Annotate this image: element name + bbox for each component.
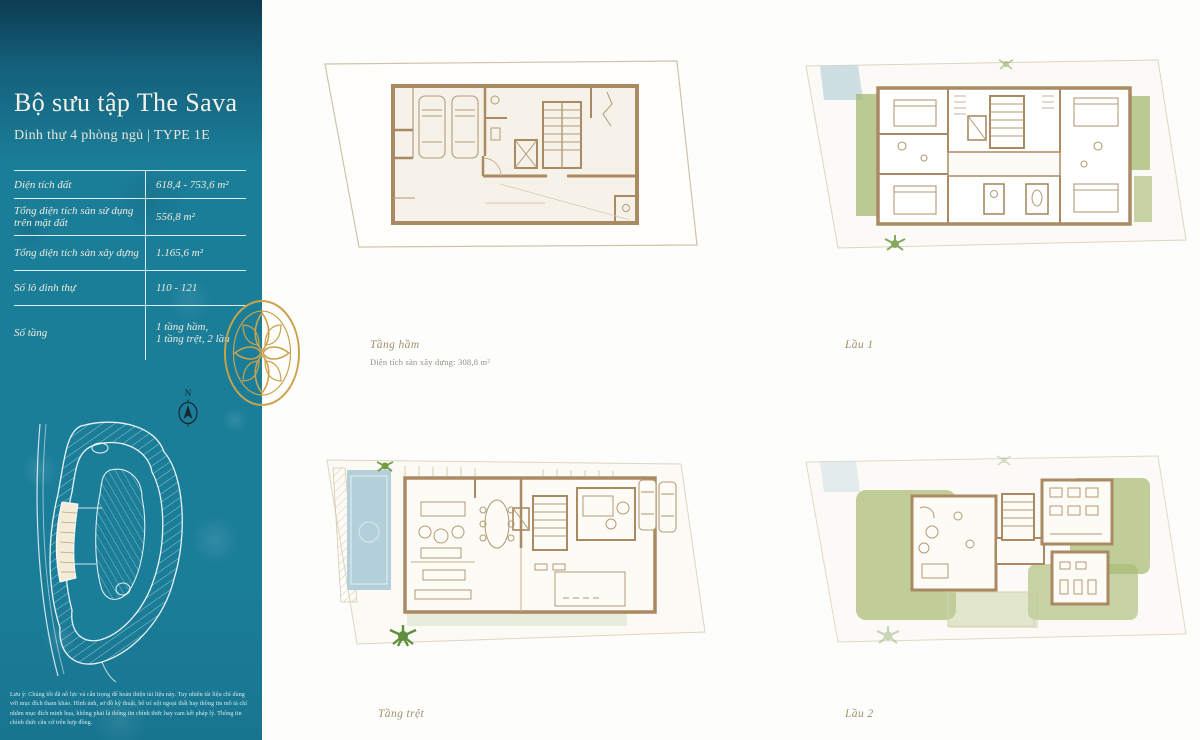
masterplan-site-map <box>6 414 212 686</box>
spec-value: 556,8 m² <box>145 199 246 235</box>
plan-label-basement: Tầng hầm <box>370 339 420 351</box>
brand-rosette-icon <box>221 297 303 409</box>
compass-north-label: N <box>172 388 204 398</box>
plan-label-level2: Lầu 2 <box>845 708 874 720</box>
floorplan-level1 <box>798 56 1190 256</box>
floorplan-level2-drawing <box>798 452 1190 652</box>
spec-row-land-area: Diện tích đất 618,4 - 753,6 m² <box>14 170 246 198</box>
floorplan-level2 <box>798 452 1190 652</box>
spec-value: 1.165,6 m² <box>145 236 246 270</box>
page-title: Bộ sưu tập The Sava <box>14 88 248 118</box>
spec-label: Tổng diện tích sàn xây dựng <box>14 247 145 259</box>
plan-area-note-basement: Diện tích sàn xây dựng: 308,8 m² <box>370 357 490 367</box>
spec-label: Số lô dinh thự <box>14 282 145 294</box>
plan-label-ground: Tầng trệt <box>378 708 424 720</box>
car-icon <box>659 482 676 532</box>
spec-label: Số tầng <box>14 327 145 339</box>
floorplan-ground <box>315 452 710 652</box>
brochure-page: Bộ sưu tập The Sava Dinh thự 4 phòng ngủ… <box>0 0 1200 740</box>
car-icon <box>639 480 656 530</box>
spec-value: 618,4 - 753,6 m² <box>145 171 246 198</box>
pool <box>347 470 391 590</box>
spec-row-floors: Số tầng 1 tầng hầm, 1 tầng trệt, 2 lầu <box>14 305 246 360</box>
legal-disclaimer: Lưu ý: Chúng tôi đã nỗ lực và cẩn trọng … <box>10 691 250 728</box>
spec-row-lot-numbers: Số lô dinh thự 110 - 121 <box>14 270 246 305</box>
floorplan-basement <box>315 58 705 248</box>
floorplan-ground-drawing <box>315 452 710 652</box>
spec-label: Tổng diện tích sàn sử dụng trên mặt đất <box>14 205 145 229</box>
spec-row-construction-area: Tổng diện tích sàn xây dựng 1.165,6 m² <box>14 235 246 270</box>
floorplan-level1-drawing <box>798 56 1190 256</box>
spec-label: Diện tích đất <box>14 179 145 191</box>
page-subtitle: Dinh thự 4 phòng ngủ | TYPE 1E <box>14 128 248 144</box>
plan-label-level1: Lầu 1 <box>845 339 874 351</box>
spec-table: Diện tích đất 618,4 - 753,6 m² Tổng diện… <box>14 170 246 360</box>
spec-row-usable-area: Tổng diện tích sàn sử dụng trên mặt đất … <box>14 198 246 235</box>
floorplan-basement-drawing <box>315 58 705 248</box>
